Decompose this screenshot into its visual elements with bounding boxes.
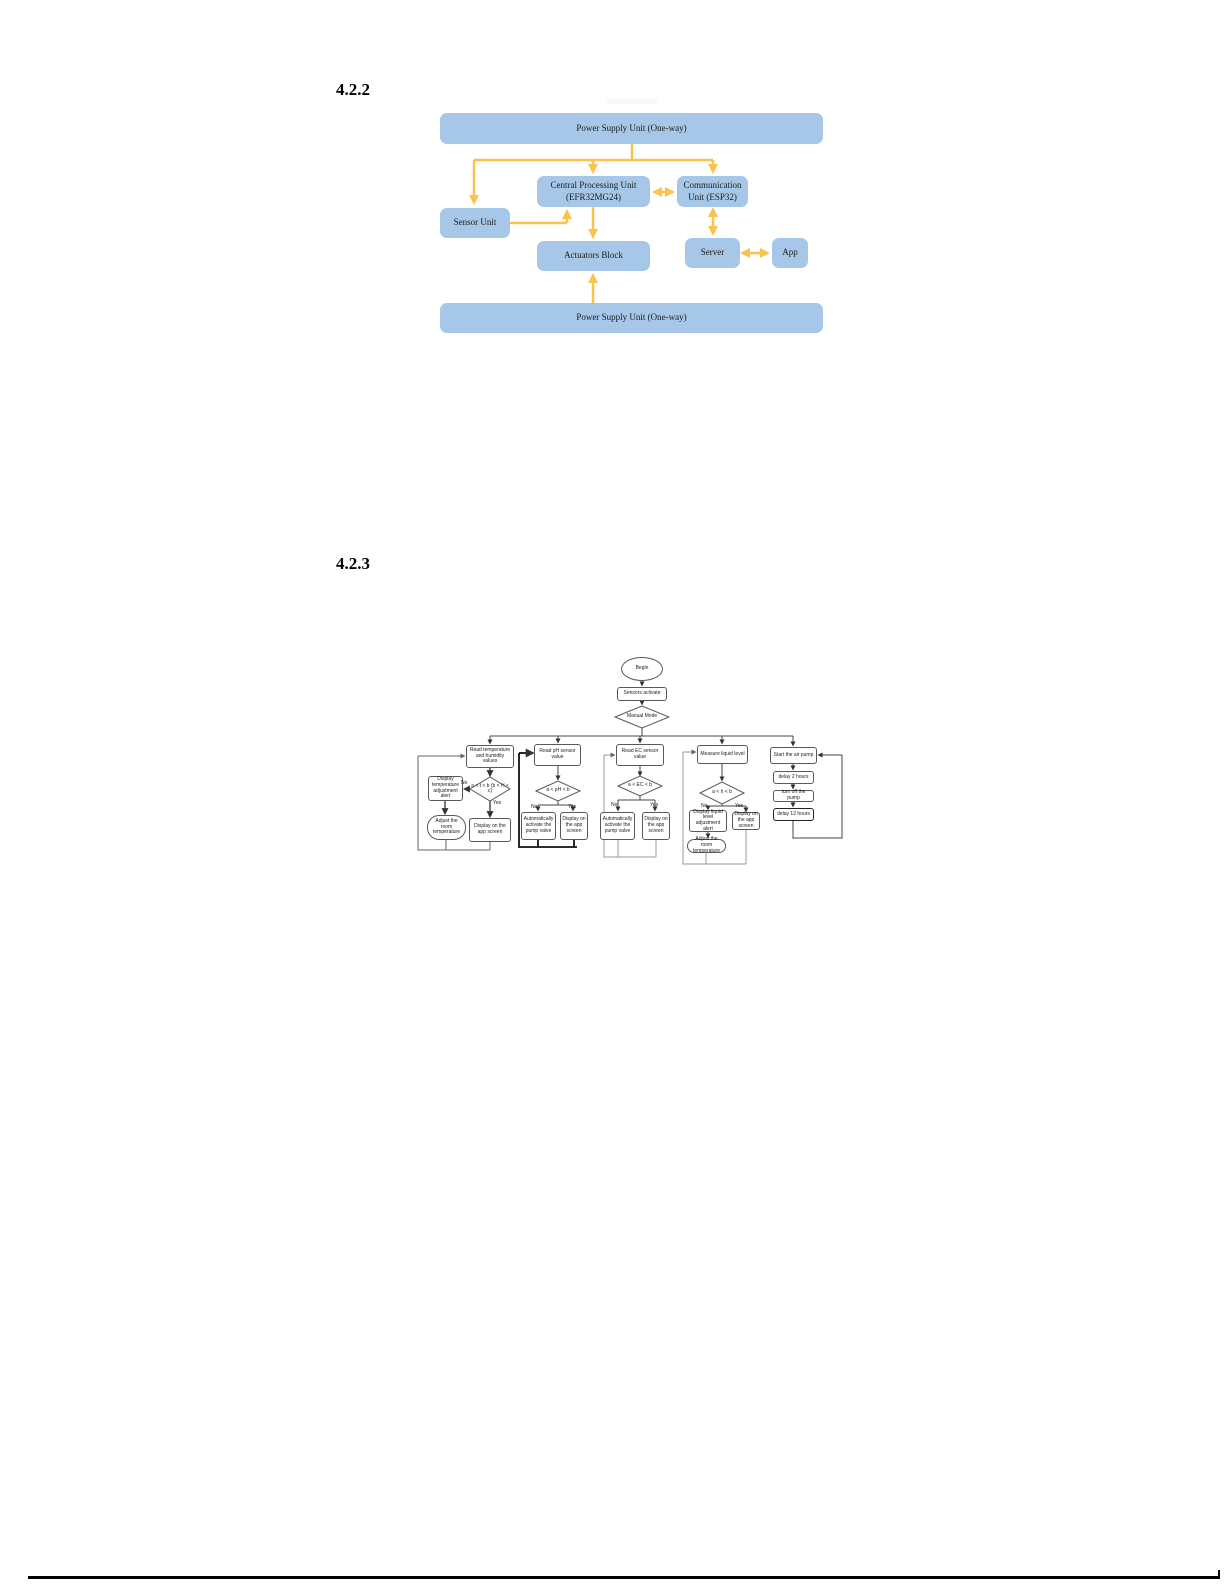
flow-liquid-condition: a < h < b — [702, 788, 742, 798]
flow-temperature-alert: Display temperature adjustment alert — [428, 776, 463, 801]
flow-ec-condition: a < EC < b — [620, 781, 660, 791]
bottom-rule-right-tick — [1218, 1570, 1220, 1579]
flow-sensors-activate: Sensors activate — [617, 687, 667, 701]
flow-ec-yes-label: Yes — [650, 802, 658, 808]
block-psu-bottom: Power Supply Unit (One-way) — [440, 303, 823, 333]
block-communication-unit: Communication Unit (ESP32) — [677, 176, 748, 207]
erased-caption — [607, 99, 657, 104]
flow-temperature-no-label: No — [461, 780, 467, 786]
block-cpu: Central Processing Unit (EFR32MG24) — [537, 176, 650, 207]
power-distribution-arrows — [474, 144, 768, 303]
flow-start-air-pump: Start the air pump — [770, 747, 817, 764]
flow-start-terminator: Begin — [621, 657, 663, 681]
block-sensor-unit: Sensor Unit — [440, 208, 510, 238]
section-heading-423: 4.2.3 — [336, 554, 370, 574]
flow-read-ec: Read EC sensor value — [616, 744, 664, 766]
block-psu-top: Power Supply Unit (One-way) — [440, 113, 823, 144]
flow-ph-yes-label: Yes — [568, 804, 576, 810]
flow-liquid-alert: Display liquid level adjustment alert — [689, 810, 727, 832]
flow-read-ph: Read pH sensor value — [534, 744, 581, 766]
flow-liquid-no-label: No — [701, 803, 707, 809]
flow-measure-liquid-level: Measure liquid level — [697, 745, 748, 764]
flow-ec-display-app: Display on the app screen — [642, 812, 670, 840]
flow-ph-display-app: Display on the app screen — [560, 812, 588, 840]
bottom-rule — [28, 1576, 1220, 1579]
block-server: Server — [685, 238, 740, 268]
flow-adjust-room-temperature: Adjust the room temperature — [427, 815, 466, 840]
flow-ph-no-label: No — [531, 804, 537, 810]
flow-temperature-display-app: Display on the app screen — [469, 818, 511, 842]
flow-temperature-condition: a < t < b (b < H < c) — [470, 782, 510, 796]
flow-liquid-adjust: Adjust the room temperature — [687, 839, 726, 853]
flow-temperature-yes-label: Yes — [493, 800, 501, 806]
flow-delay-12-hours: delay 12 hours — [773, 808, 814, 821]
flow-ec-no-label: No — [611, 802, 617, 808]
flow-manual-mode-decision: Manual Mode — [615, 711, 669, 723]
flow-ph-activate-pump: Automatically activate the pump valve — [521, 812, 556, 840]
flow-ec-activate-pump: Automatically activate the pump valve — [600, 812, 635, 840]
control-flowchart: Begin Sensors activate Manual Mode Read … — [405, 648, 860, 873]
flow-read-temperature: Read temperature and humidity values — [466, 745, 514, 768]
system-block-diagram: Power Supply Unit (One-way) Central Proc… — [430, 95, 830, 340]
block-app: App — [772, 238, 808, 268]
flow-liquid-display-app: Display on the app screen — [732, 812, 760, 830]
section-heading-422: 4.2.2 — [336, 80, 370, 100]
flow-turn-off-pump: turn off the pump — [773, 790, 814, 802]
block-actuators: Actuators Block — [537, 241, 650, 271]
document-page: 4.2.2 4.2.3 — [0, 0, 1225, 1585]
flow-ph-condition: a < pH < b — [538, 786, 578, 796]
flow-delay-2-hours: delay 2 hours — [773, 771, 814, 784]
flow-liquid-yes-label: Yes — [735, 803, 743, 809]
